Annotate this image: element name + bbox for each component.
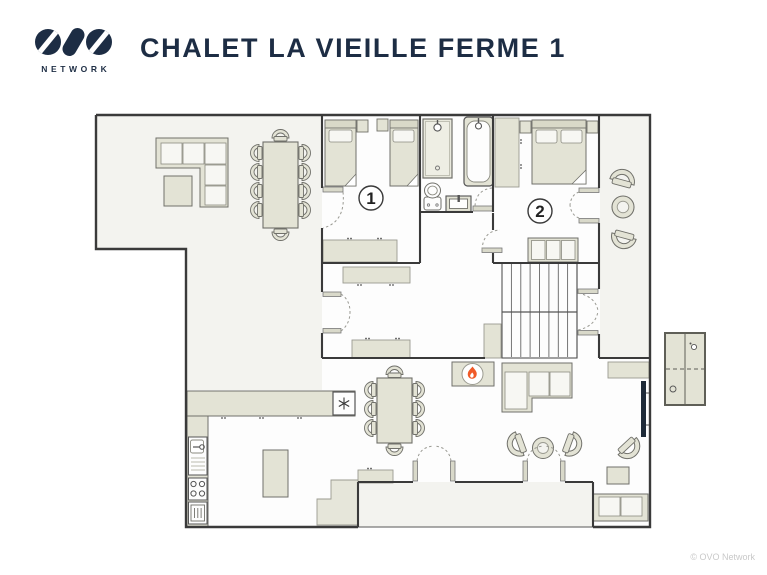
outdoor-table	[612, 196, 634, 218]
floor-terrace	[358, 482, 593, 527]
double-bed	[532, 120, 586, 184]
room-1-label: 1	[366, 189, 375, 208]
nightstand	[357, 120, 368, 132]
wardrobe	[323, 240, 397, 262]
dining-table-large	[263, 142, 298, 228]
fireplace	[452, 362, 494, 386]
single-bed	[390, 120, 418, 186]
sink-unit	[189, 437, 208, 475]
wardrobe	[495, 118, 519, 187]
snowflake-icon	[333, 392, 355, 415]
kitchen-counter	[187, 391, 355, 416]
dining-table-small	[377, 378, 412, 443]
ping-pong-table	[665, 333, 705, 405]
stove-icon	[189, 478, 208, 500]
kitchen-island	[263, 450, 288, 497]
sink-icon	[446, 195, 471, 212]
toilet-icon	[424, 183, 441, 210]
bench-seat	[528, 238, 578, 262]
two-seat-sofa	[593, 494, 648, 521]
room-2-label: 2	[535, 202, 544, 221]
nightstand	[587, 121, 598, 133]
floor-plan: 1	[0, 0, 767, 575]
nightstand	[520, 121, 531, 133]
copyright-watermark: © OVO Network	[690, 552, 755, 562]
wardrobe	[352, 340, 410, 358]
coffee-table	[607, 467, 629, 484]
single-bed	[325, 120, 356, 186]
shower-icon	[423, 119, 452, 178]
ottoman	[164, 176, 192, 206]
sideboard	[608, 362, 649, 378]
stair-divider	[484, 324, 501, 358]
wardrobe	[343, 267, 410, 283]
nightstand	[377, 119, 388, 131]
oven-icon	[189, 502, 208, 524]
bathtub-icon	[464, 117, 493, 186]
